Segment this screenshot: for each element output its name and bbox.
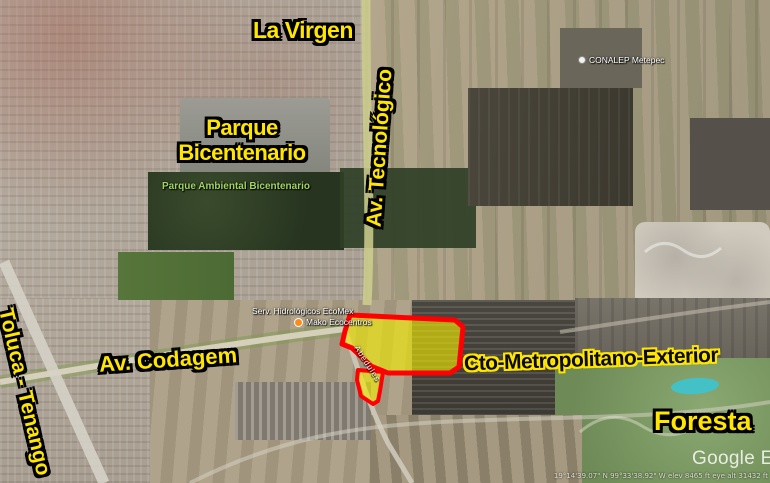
poi-conalep-metepec[interactable]: CONALEP Metepec [578, 55, 664, 65]
satellite-map-canvas[interactable]: Parque Ambiental Bicentenario CONALEP Me… [0, 0, 770, 483]
foresta-pond [671, 376, 720, 395]
poi-label-parque-ambiental: Parque Ambiental Bicentenario [162, 181, 310, 192]
poi-mako-ecocentros[interactable]: Mako Ecocentros [294, 317, 372, 327]
school-marker-icon[interactable] [578, 56, 586, 64]
area-label-line1: Parque [172, 116, 312, 141]
poi-label-text: Parque Ambiental Bicentenario [162, 181, 310, 192]
area-label-line2: Bicentenario [172, 141, 312, 166]
google-earth-watermark: Google Earth [692, 448, 770, 470]
road-cto-metropolitano [560, 302, 770, 332]
coordinates-status-bar: 19°14'39.07" N 99°33'38.92" W elev 8465 … [554, 472, 768, 480]
poi-ecomex[interactable]: Serv. Hidrológicos EcoMex [252, 306, 353, 316]
area-label-foresta: Foresta [654, 406, 752, 437]
road-housing-loop [645, 243, 721, 256]
poi-label-text: CONALEP Metepec [589, 55, 664, 65]
poi-marker-icon[interactable] [294, 318, 303, 327]
poi-label-text: Serv. Hidrológicos EcoMex [252, 306, 353, 316]
area-label-parque-bicentenario: Parque Bicentenario [172, 116, 312, 165]
area-label-la-virgen: La Virgen [253, 17, 353, 44]
poi-label-text: Mako Ecocentros [306, 317, 372, 327]
